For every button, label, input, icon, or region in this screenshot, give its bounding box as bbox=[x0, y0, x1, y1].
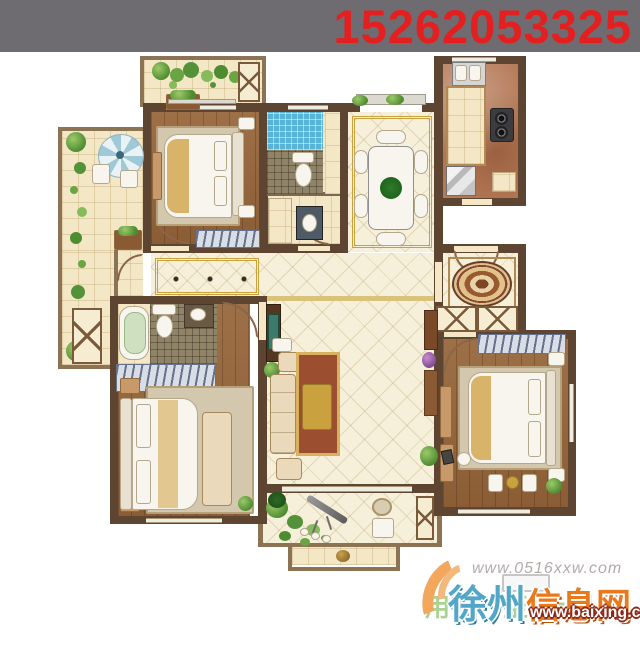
bed3-tea-table bbox=[506, 476, 519, 489]
dining-chair-bottom bbox=[376, 232, 406, 246]
dining-chair-r2 bbox=[414, 194, 428, 218]
balcony-pebble-3 bbox=[322, 535, 331, 543]
balcony-top-wall-right bbox=[262, 56, 266, 107]
master-toilet-bowl bbox=[156, 315, 173, 338]
balcony-top-wall-left bbox=[140, 56, 144, 107]
foyer-medallion-rug bbox=[452, 261, 512, 307]
kitchen-counter bbox=[446, 86, 486, 166]
wall-foyer-right bbox=[518, 244, 526, 336]
master-bench bbox=[202, 412, 232, 506]
terrace-wall-bottom bbox=[58, 365, 116, 369]
balcony-slider-door bbox=[282, 486, 412, 492]
bed2-dresser bbox=[152, 152, 162, 200]
living-plant-right bbox=[420, 446, 438, 466]
foyer-cabinet-x2 bbox=[477, 306, 518, 332]
dining-chair-l1 bbox=[354, 150, 368, 174]
master-stool-top bbox=[120, 378, 140, 394]
bumpout-plant bbox=[336, 550, 350, 562]
dining-chair-top bbox=[376, 130, 406, 144]
window-master-bottom bbox=[146, 518, 222, 523]
wall-master-top bbox=[110, 296, 267, 304]
balcony-pebble-1 bbox=[300, 528, 309, 536]
kitchen-mat bbox=[492, 172, 516, 192]
living-armchair-bottom bbox=[276, 458, 302, 480]
dining-chair-r1 bbox=[414, 150, 428, 174]
bed2-nightstand-top bbox=[238, 117, 255, 130]
balcony-bottom-wall bbox=[258, 543, 442, 547]
balcony-bottom-floor bbox=[263, 493, 437, 543]
toilet-bowl-main bbox=[295, 163, 312, 187]
bed3-plant bbox=[546, 478, 562, 494]
bed3-blanket bbox=[471, 376, 491, 460]
bumpout-wall-bottom bbox=[288, 567, 400, 571]
watermark-brand-city: 徐州 bbox=[448, 584, 526, 627]
bed3-pillow-1 bbox=[528, 379, 541, 415]
toilet-tank-main bbox=[292, 152, 314, 163]
bed2-blanket bbox=[167, 139, 189, 213]
stove-burner-1 bbox=[495, 112, 508, 125]
bed3-wardrobe bbox=[478, 334, 566, 354]
laundry-shelf bbox=[268, 198, 292, 244]
wall-bath-dining bbox=[340, 103, 348, 253]
screenshot-root: { "banner": { "phone": "15262053325" }, … bbox=[0, 0, 640, 626]
door-gap-bath bbox=[298, 246, 330, 251]
balcony-chair bbox=[372, 518, 394, 538]
balcony-star-plant bbox=[268, 492, 286, 508]
balcony-lattice bbox=[416, 496, 434, 540]
coffee-table bbox=[302, 384, 332, 430]
door-gap-bed2 bbox=[151, 246, 189, 251]
kitchen-sink-basin-2 bbox=[469, 65, 481, 81]
bed3-nightstand-top bbox=[548, 352, 565, 366]
door-gap-bed3 bbox=[444, 332, 476, 337]
balcony-pebble-2 bbox=[311, 532, 320, 540]
bed2-pillow-1 bbox=[214, 141, 227, 171]
terrace-wall-top bbox=[58, 127, 146, 131]
master-pillow-1 bbox=[136, 404, 151, 448]
kitchen-sink-basin-1 bbox=[455, 65, 467, 81]
bumpout-wall-right bbox=[396, 545, 400, 569]
window-bath-top bbox=[288, 105, 328, 110]
foyer-cabinet-x1 bbox=[436, 306, 477, 332]
bed3-chair-1 bbox=[488, 474, 503, 492]
bumpout-wall-left bbox=[288, 545, 292, 569]
wall-kitchen-right bbox=[518, 56, 526, 206]
dining-bay-plant-1 bbox=[352, 95, 368, 106]
bed2-pillow-2 bbox=[214, 176, 227, 206]
balcony-top-plants bbox=[152, 62, 170, 80]
stove-burner-2 bbox=[495, 126, 508, 139]
terrace-wall-left bbox=[58, 127, 62, 369]
master-toilet-tank bbox=[152, 304, 176, 315]
bed3-desk-chair bbox=[457, 452, 471, 466]
master-blanket bbox=[158, 400, 178, 508]
display-cabinet bbox=[424, 310, 438, 350]
wall-master-left bbox=[110, 296, 118, 524]
wall-bed2-left bbox=[143, 103, 151, 253]
balcony-stone-table bbox=[372, 498, 392, 516]
bed2-nightstand-bottom bbox=[238, 205, 255, 218]
door-arc-master bbox=[222, 302, 258, 338]
terrace-chair-2 bbox=[120, 170, 138, 188]
bedroom-top-sill bbox=[168, 99, 236, 104]
terrace-umbrella-center bbox=[116, 151, 124, 159]
hall-runner-rug bbox=[155, 258, 259, 295]
dining-centerpiece bbox=[380, 177, 402, 199]
dining-bay-plant-2 bbox=[386, 94, 404, 105]
kitchen-fridge bbox=[446, 166, 476, 196]
living-hall-border bbox=[267, 296, 434, 301]
bed3-headboard bbox=[546, 370, 556, 466]
master-sink-basin bbox=[190, 308, 206, 321]
floor-plan bbox=[0, 0, 640, 626]
bath-shower bbox=[267, 112, 323, 150]
master-plant bbox=[238, 496, 253, 511]
bath-vanity-strip bbox=[325, 112, 340, 194]
side-console bbox=[424, 370, 438, 416]
opening-hall-foyer bbox=[435, 262, 442, 302]
window-bed3-right bbox=[569, 384, 574, 442]
door-gap-kitchen bbox=[462, 199, 492, 205]
bed3-chair-2 bbox=[522, 474, 537, 492]
bed2-headboard bbox=[232, 132, 244, 216]
bed3-dresser bbox=[440, 386, 452, 438]
balcony-top-lattice bbox=[238, 62, 260, 102]
door-gap-master bbox=[259, 302, 266, 340]
bed2-wardrobe bbox=[196, 230, 260, 248]
terrace-planter-green bbox=[118, 226, 138, 236]
bed3-pillow-2 bbox=[528, 421, 541, 457]
balcony-top-wall bbox=[140, 56, 266, 60]
window-bed3-bottom bbox=[458, 509, 530, 514]
master-bathtub-basin bbox=[124, 312, 146, 354]
watermark-baixing-url: www.baixing.com bbox=[530, 604, 640, 622]
terrace-lattice bbox=[72, 308, 102, 364]
living-flowers bbox=[422, 352, 436, 368]
washing-machine-drum bbox=[302, 214, 317, 232]
living-end-table-top bbox=[272, 338, 292, 352]
terrace-vine bbox=[66, 132, 86, 152]
terrace-chair-1 bbox=[92, 164, 110, 184]
master-pillow-2 bbox=[136, 460, 151, 504]
dining-chair-l2 bbox=[354, 194, 368, 218]
master-headboard bbox=[120, 398, 132, 510]
living-sofa bbox=[270, 374, 296, 454]
